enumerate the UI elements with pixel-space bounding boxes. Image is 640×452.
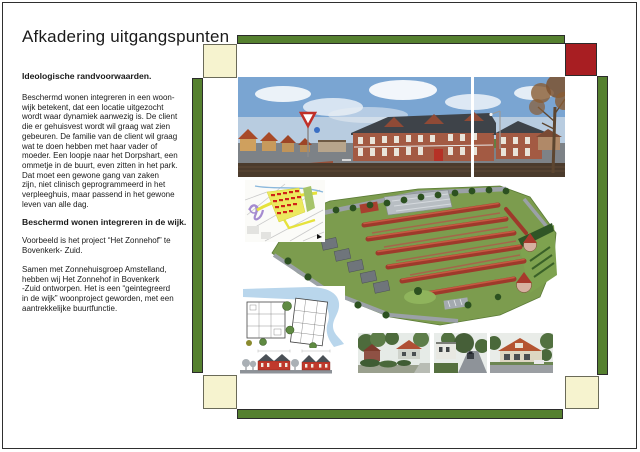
corner-square-top-left (203, 44, 237, 78)
city-map-illustration (245, 180, 325, 242)
frame-bottom-bar (237, 409, 563, 419)
text-column: Ideologische randvoorwaarden. Beschermd … (22, 71, 194, 313)
corner-square-top-right (565, 43, 597, 76)
page-title: Afkadering uitgangspunten (22, 27, 229, 47)
frame-top-bar (237, 35, 565, 44)
document-page: Afkadering uitgangspunten Ideologische r… (0, 0, 640, 452)
neighborhood-photo-3 (490, 333, 553, 373)
paragraph-example: Voorbeeld is het project “Het Zonnehof” … (22, 236, 194, 255)
paragraph-integration: Beschermd wonen integreren in een woon- … (22, 93, 194, 209)
floor-plan-drawing (243, 286, 345, 348)
heading-ideological: Ideologische randvoorwaarden. (22, 71, 194, 81)
neighborhood-photo-2 (434, 333, 487, 373)
neighborhood-photo-1 (358, 333, 430, 373)
frame-right-bar (597, 76, 608, 375)
heading-district: Beschermd wonen integreren in de wijk. (22, 217, 194, 227)
corner-square-bottom-left (203, 375, 237, 409)
paragraph-zonnehuisgroep: Samen met Zonnehuisgroep Amstelland, heb… (22, 265, 194, 314)
elevation-drawing (238, 349, 334, 377)
street-panorama-photo (238, 77, 565, 177)
frame-left-bar (192, 78, 203, 373)
corner-square-bottom-right (565, 376, 599, 409)
